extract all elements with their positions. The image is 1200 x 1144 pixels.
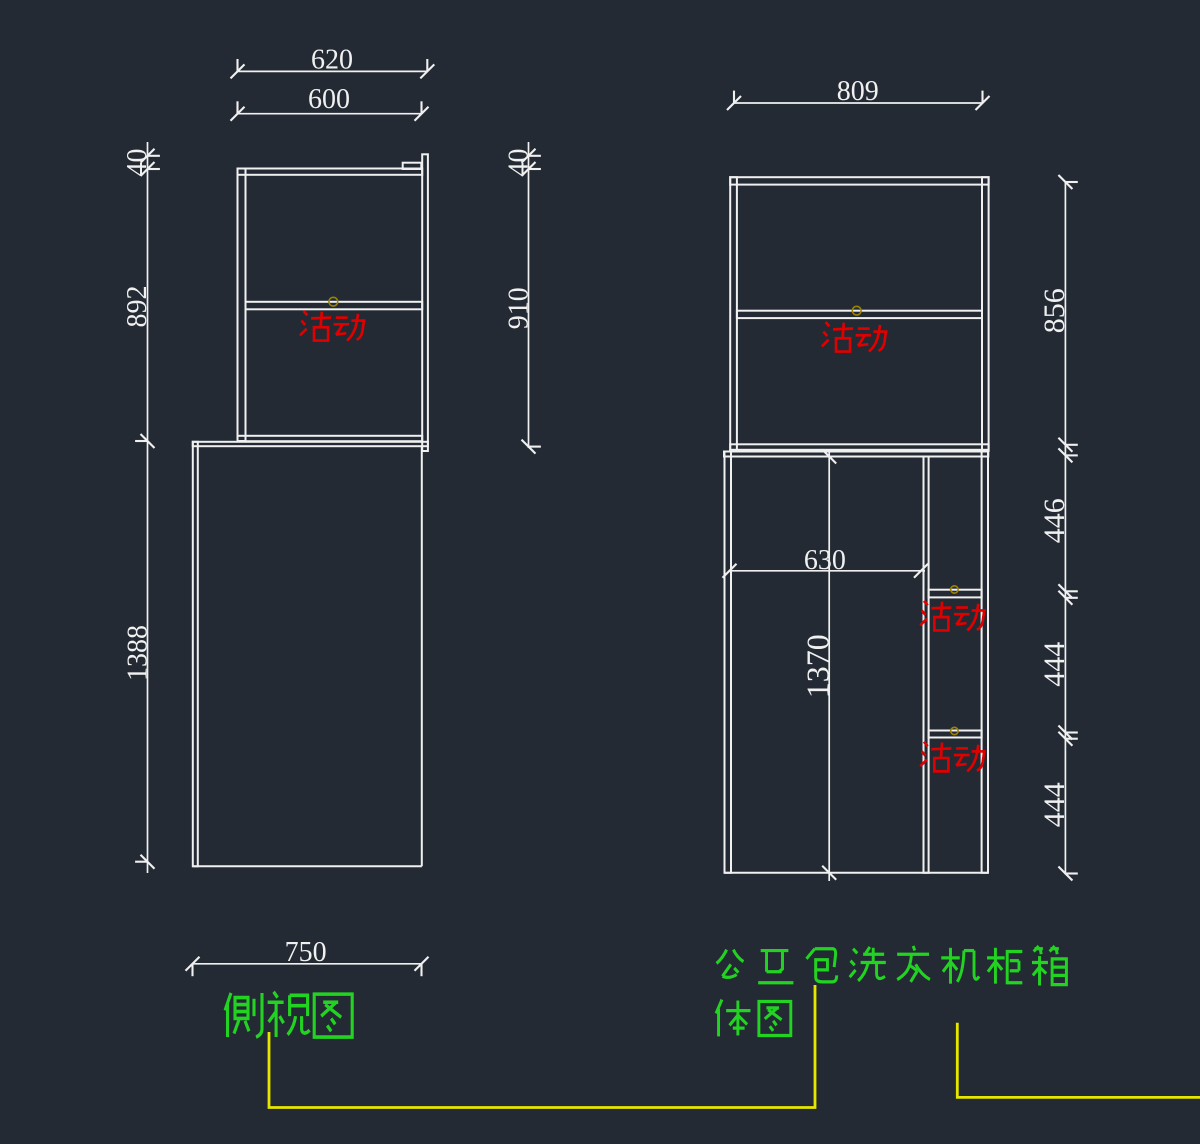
svg-text:1370: 1370 [800, 634, 836, 698]
svg-text:809: 809 [837, 76, 879, 107]
svg-text:750: 750 [285, 937, 327, 968]
svg-text:600: 600 [308, 84, 350, 115]
svg-text:620: 620 [311, 45, 353, 76]
svg-text:892: 892 [122, 286, 153, 328]
svg-text:444: 444 [1038, 642, 1071, 687]
svg-text:910: 910 [503, 287, 534, 329]
svg-text:444: 444 [1038, 782, 1071, 827]
svg-text:1388: 1388 [123, 625, 154, 681]
svg-text:40: 40 [122, 149, 153, 177]
svg-text:630: 630 [804, 545, 846, 576]
svg-text:856: 856 [1038, 288, 1071, 333]
svg-text:446: 446 [1038, 498, 1071, 543]
svg-text:40: 40 [503, 149, 534, 177]
